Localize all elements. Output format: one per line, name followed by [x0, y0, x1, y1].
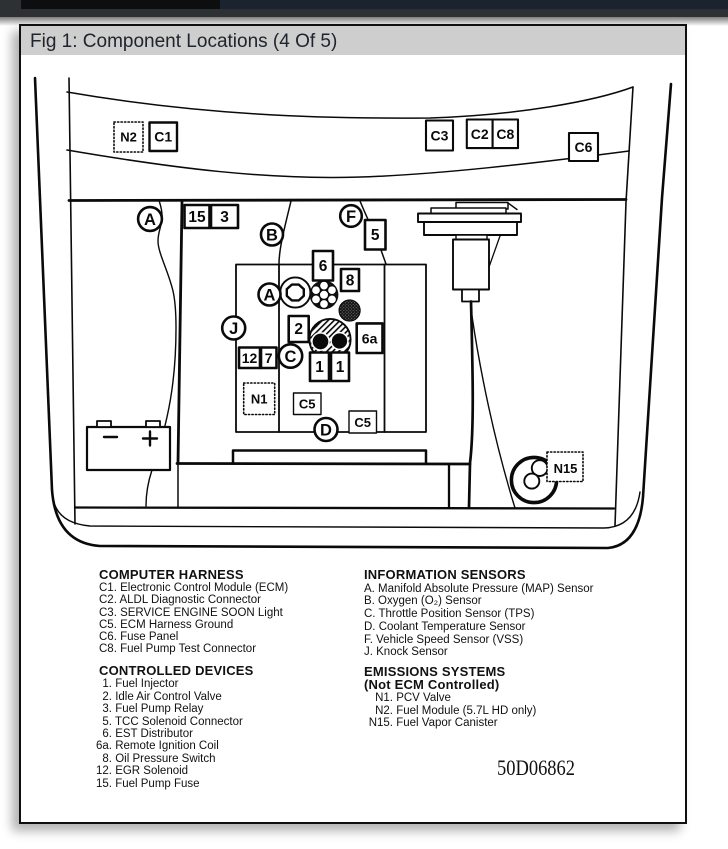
svg-text:A: A — [264, 287, 276, 305]
svg-text:3: 3 — [220, 209, 229, 226]
svg-text:C8: C8 — [496, 126, 514, 142]
svg-text:C5: C5 — [299, 397, 316, 412]
svg-text:C3: C3 — [431, 128, 449, 144]
svg-text:N15: N15 — [554, 461, 578, 476]
svg-text:N1: N1 — [251, 392, 268, 407]
svg-text:F: F — [346, 208, 356, 226]
svg-text:D: D — [320, 422, 332, 440]
svg-text:15: 15 — [188, 209, 206, 226]
svg-text:J: J — [229, 320, 238, 338]
svg-text:8: 8 — [346, 273, 355, 290]
svg-text:2: 2 — [294, 321, 303, 338]
svg-text:1: 1 — [336, 359, 345, 376]
svg-text:6a: 6a — [362, 331, 378, 347]
svg-text:C: C — [285, 348, 297, 366]
svg-text:1: 1 — [315, 359, 324, 376]
svg-text:6: 6 — [319, 258, 328, 275]
svg-text:5: 5 — [371, 227, 380, 244]
svg-text:A: A — [144, 211, 156, 229]
svg-text:B: B — [266, 227, 278, 245]
svg-text:C5: C5 — [354, 415, 371, 430]
svg-text:C6: C6 — [575, 139, 593, 155]
svg-text:N2: N2 — [120, 130, 137, 145]
svg-text:C1: C1 — [154, 129, 172, 145]
svg-text:12: 12 — [242, 350, 258, 366]
svg-text:7: 7 — [265, 350, 273, 366]
svg-text:C2: C2 — [471, 126, 489, 142]
